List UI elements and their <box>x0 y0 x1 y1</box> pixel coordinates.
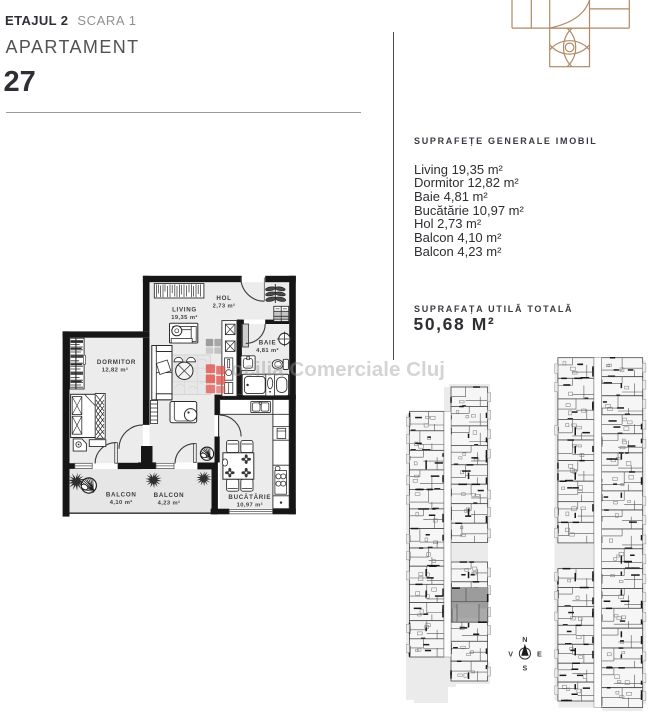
svg-text:10,97 m²: 10,97 m² <box>237 502 263 509</box>
svg-text:V: V <box>508 650 513 659</box>
svg-text:4,23 m²: 4,23 m² <box>158 500 181 507</box>
svg-text:HOL: HOL <box>216 295 231 302</box>
svg-text:4,81 m²: 4,81 m² <box>256 347 279 354</box>
svg-text:N: N <box>522 635 527 644</box>
svg-text:ocilia Comerciale Cluj: ocilia Comerciale Cluj <box>231 358 445 381</box>
svg-text:BUCĂTĂRIE: BUCĂTĂRIE <box>228 494 271 501</box>
svg-text:19,35 m²: 19,35 m² <box>171 314 197 321</box>
svg-text:S: S <box>523 663 528 672</box>
svg-text:BALCON: BALCON <box>106 492 137 499</box>
svg-text:LIVING: LIVING <box>172 306 197 313</box>
svg-text:BAIE: BAIE <box>259 340 277 347</box>
svg-text:BALCON: BALCON <box>154 492 185 499</box>
svg-text:2,73 m²: 2,73 m² <box>213 302 236 309</box>
svg-text:E: E <box>537 649 542 658</box>
svg-text:4,10 m²: 4,10 m² <box>110 499 133 506</box>
svg-text:12,82 m²: 12,82 m² <box>102 367 128 374</box>
svg-text:DORMITOR: DORMITOR <box>97 359 136 366</box>
